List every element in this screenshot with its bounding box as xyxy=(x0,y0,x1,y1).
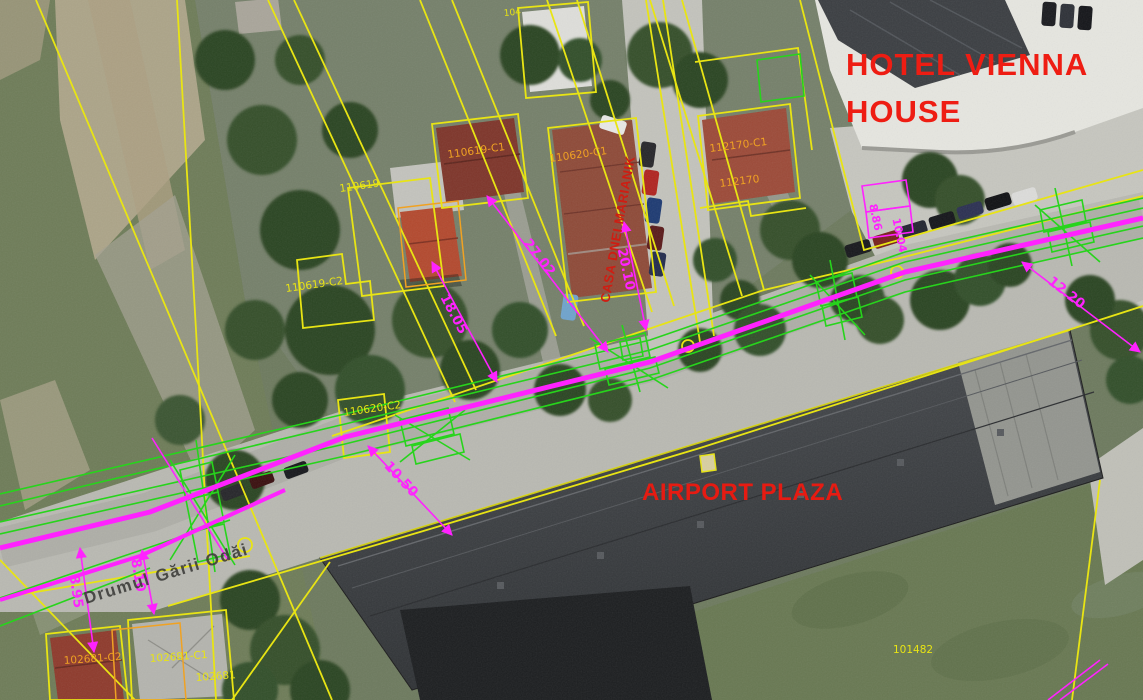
airport-plaza-label: AIRPORT PLAZA xyxy=(642,479,843,506)
cadastral-aerial-map[interactable]: 27.02 20.10 18.05 12.20 10.50 8.95 8.10 … xyxy=(0,0,1143,700)
hotel-name-label-line2: HOUSE xyxy=(846,94,961,129)
map-canvas[interactable]: 27.02 20.10 18.05 12.20 10.50 8.95 8.10 … xyxy=(0,0,1143,700)
photo-grain-texture xyxy=(0,0,1143,700)
parcel-label-104: 104 xyxy=(503,8,521,19)
hotel-name-label-line1: HOTEL VIENNA xyxy=(846,47,1088,82)
parcel-label-101482: 101482 xyxy=(893,644,933,656)
